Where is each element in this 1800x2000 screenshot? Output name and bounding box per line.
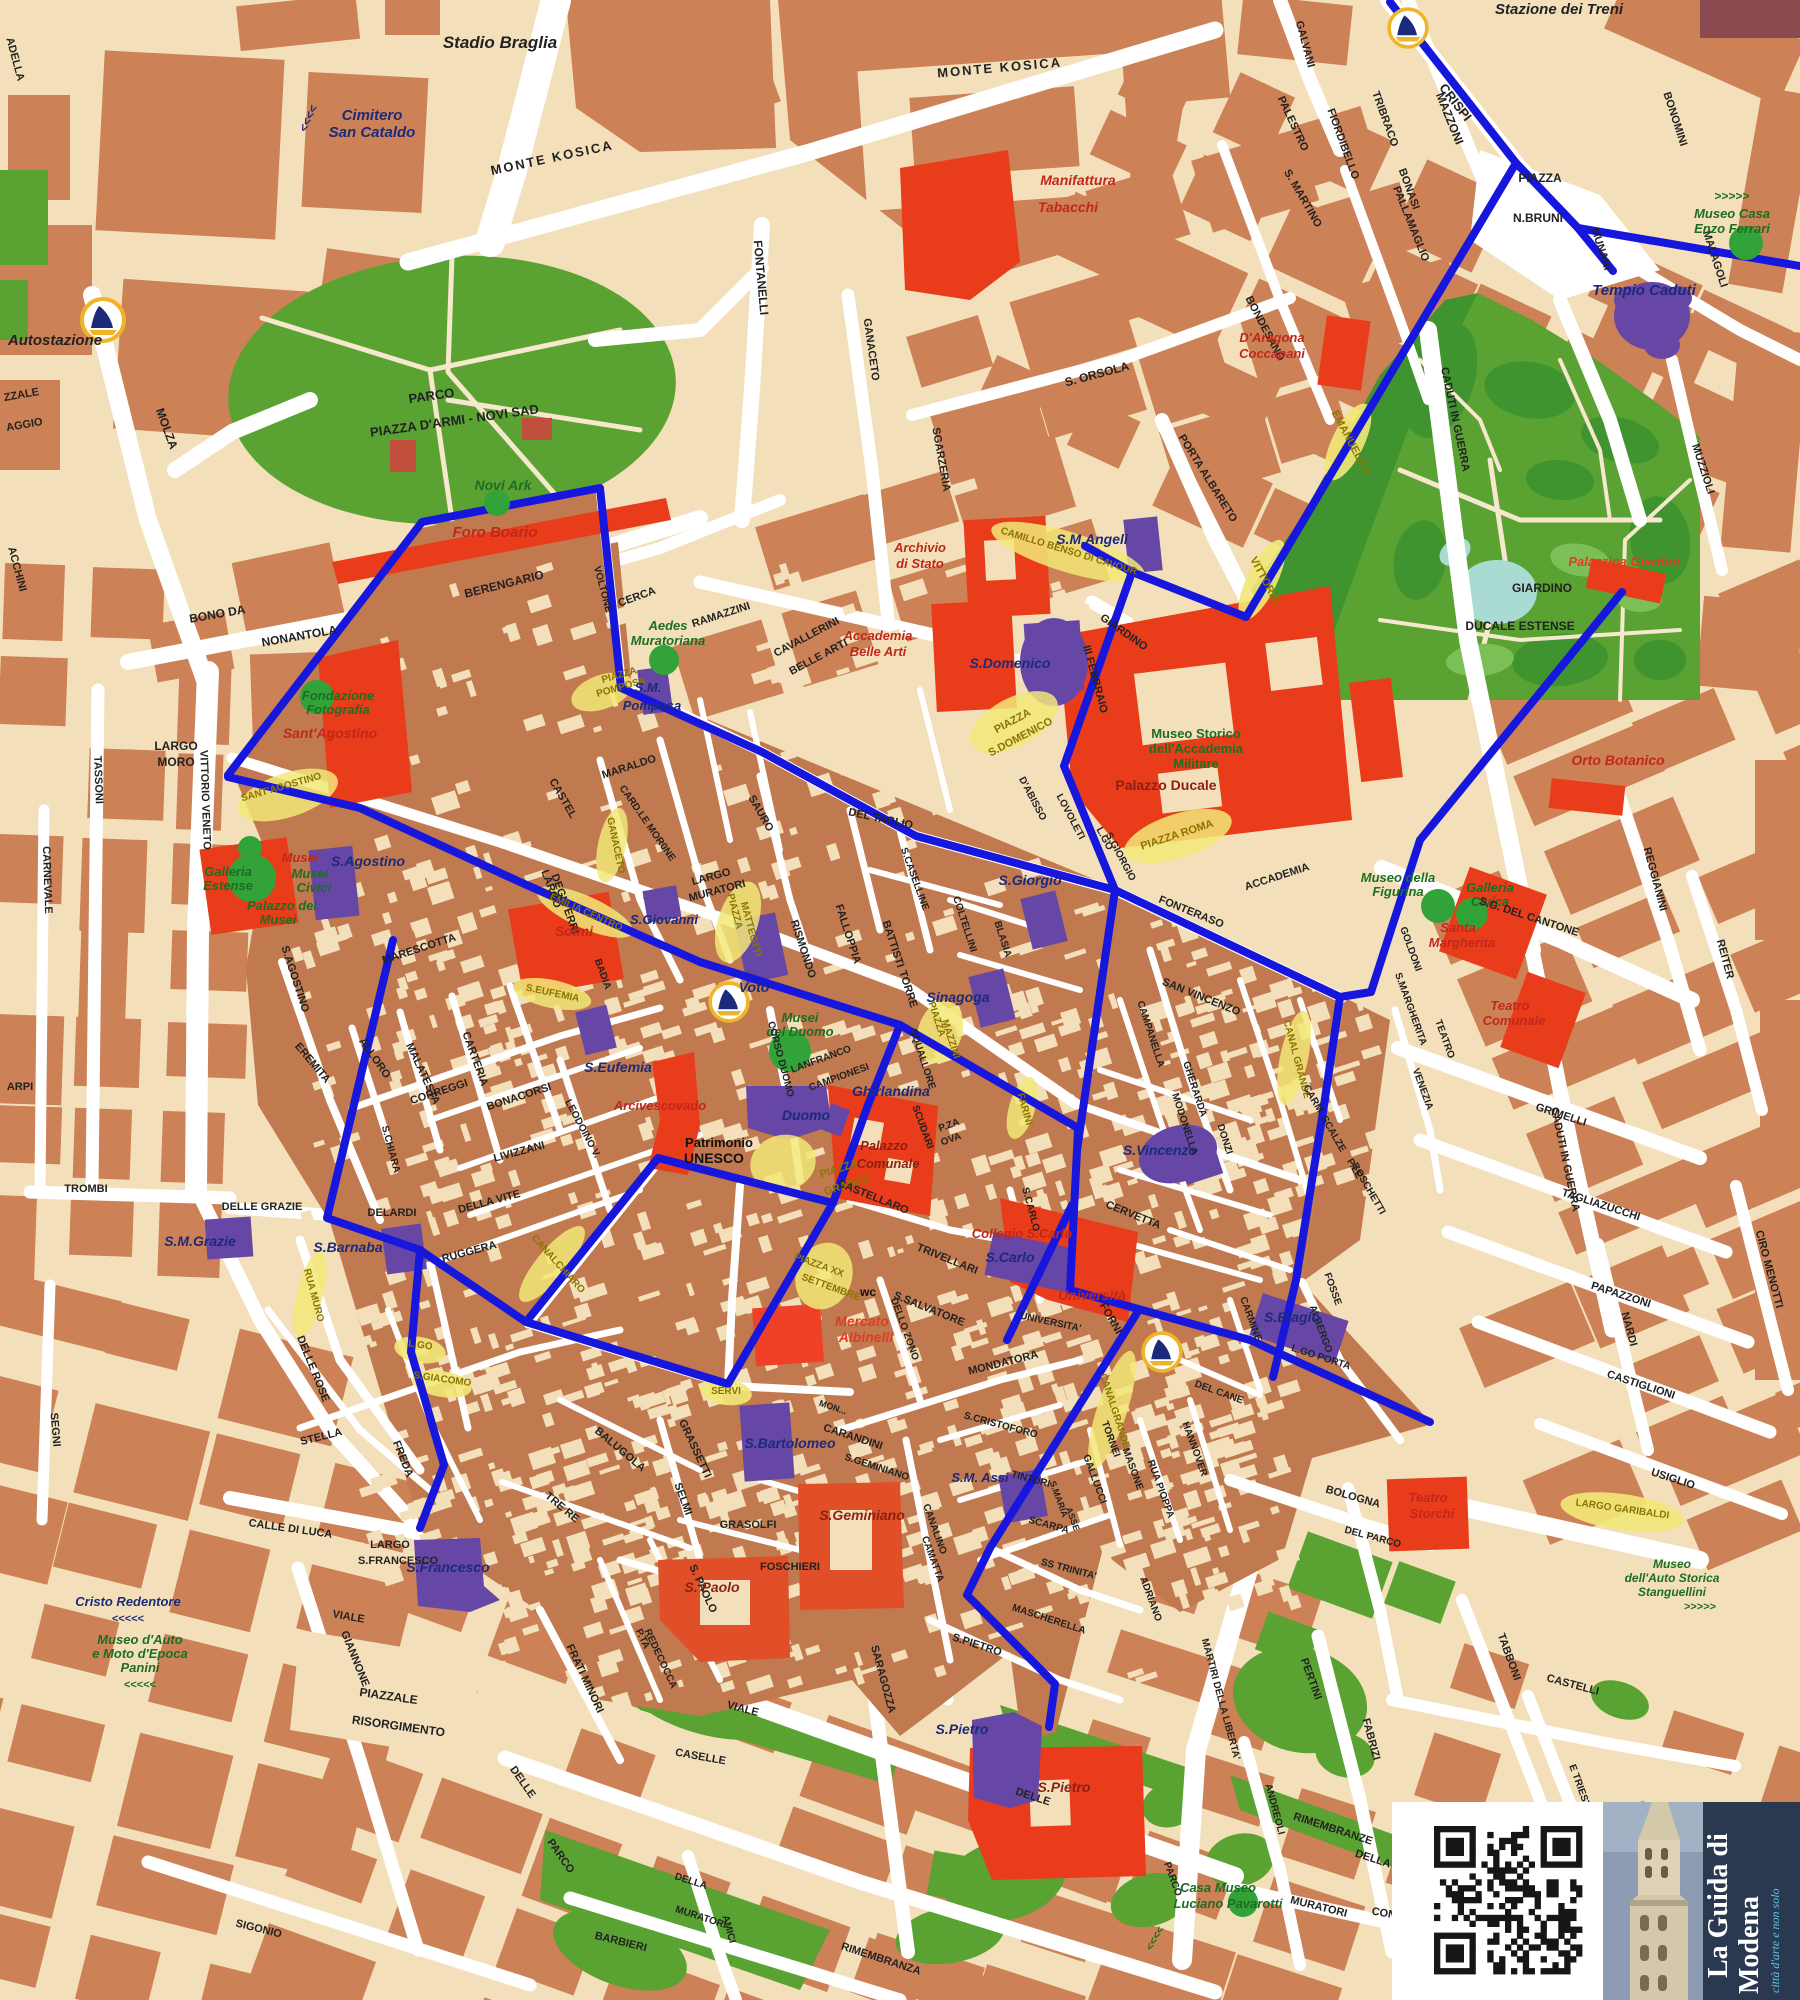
svg-text:Musei: Musei bbox=[260, 912, 297, 927]
svg-text:Sant'Agostino: Sant'Agostino bbox=[283, 725, 378, 741]
svg-text:di Stato: di Stato bbox=[896, 556, 944, 571]
svg-text:DUCALE ESTENSE: DUCALE ESTENSE bbox=[1465, 619, 1574, 633]
svg-text:CARNEVALE: CARNEVALE bbox=[40, 846, 54, 914]
svg-text:GIARDINO: GIARDINO bbox=[1512, 581, 1572, 595]
svg-text:Muratoriana: Muratoriana bbox=[631, 633, 705, 648]
svg-text:Voto: Voto bbox=[739, 979, 770, 995]
svg-text:Arcivescovado: Arcivescovado bbox=[613, 1098, 707, 1113]
svg-text:S.FRANCESCO: S.FRANCESCO bbox=[358, 1555, 439, 1567]
svg-text:S.Geminiano: S.Geminiano bbox=[819, 1507, 905, 1523]
svg-text:città d'arte e non solo: città d'arte e non solo bbox=[1768, 1888, 1782, 1993]
svg-text:Autostazione: Autostazione bbox=[7, 332, 102, 349]
svg-text:GRASOLFI: GRASOLFI bbox=[720, 1519, 777, 1531]
svg-text:dell'Accademia: dell'Accademia bbox=[1149, 741, 1244, 756]
svg-text:Teatro: Teatro bbox=[1490, 998, 1529, 1013]
svg-text:Luciano Pavarotti: Luciano Pavarotti bbox=[1173, 1896, 1282, 1911]
svg-text:Militare: Militare bbox=[1173, 756, 1219, 771]
svg-text:Sinagoga: Sinagoga bbox=[926, 989, 989, 1005]
svg-text:LARGO: LARGO bbox=[154, 739, 197, 753]
svg-text:Aedes: Aedes bbox=[647, 618, 687, 633]
svg-text:e Moto d'Epoca: e Moto d'Epoca bbox=[92, 1646, 188, 1661]
svg-text:Cristo Redentore: Cristo Redentore bbox=[75, 1594, 180, 1609]
svg-text:Duomo: Duomo bbox=[782, 1107, 831, 1123]
svg-text:Enzo Ferrari: Enzo Ferrari bbox=[1694, 221, 1770, 236]
svg-text:Novi Ark: Novi Ark bbox=[474, 477, 532, 493]
svg-text:S.Pietro: S.Pietro bbox=[1038, 1779, 1091, 1795]
svg-text:dell'Auto Storica: dell'Auto Storica bbox=[1625, 1571, 1720, 1585]
svg-text:Museo Casa: Museo Casa bbox=[1694, 206, 1770, 221]
svg-text:Comunale: Comunale bbox=[857, 1156, 920, 1171]
svg-text:Patrimonio: Patrimonio bbox=[685, 1135, 753, 1150]
svg-text:S.Barnaba: S.Barnaba bbox=[313, 1239, 382, 1255]
svg-text:Civici: Civici bbox=[297, 880, 332, 895]
svg-text:Belle Arti: Belle Arti bbox=[850, 644, 907, 659]
svg-text:Comunale: Comunale bbox=[1483, 1013, 1546, 1028]
svg-text:MORO: MORO bbox=[157, 755, 194, 769]
svg-text:Teatro: Teatro bbox=[1408, 1490, 1447, 1505]
svg-text:S.M.: S.M. bbox=[635, 680, 662, 695]
svg-text:Museo d'Auto: Museo d'Auto bbox=[97, 1632, 182, 1647]
svg-text:S.Eufemia: S.Eufemia bbox=[584, 1059, 652, 1075]
svg-text:Tabacchi: Tabacchi bbox=[1038, 199, 1099, 215]
svg-text:S.M.Grazie: S.M.Grazie bbox=[164, 1233, 236, 1249]
svg-text:Stanguellini: Stanguellini bbox=[1638, 1585, 1707, 1599]
svg-text:SERVI: SERVI bbox=[711, 1386, 741, 1397]
svg-text:Casa Museo: Casa Museo bbox=[1180, 1880, 1256, 1895]
svg-text:<<<<<: <<<<< bbox=[112, 1613, 144, 1625]
svg-text:Museo Storico: Museo Storico bbox=[1151, 726, 1241, 741]
svg-text:Figurina: Figurina bbox=[1372, 884, 1423, 899]
svg-text:Università: Università bbox=[1058, 1287, 1126, 1303]
svg-text:San Cataldo: San Cataldo bbox=[329, 124, 416, 141]
svg-text:S.Domenico: S.Domenico bbox=[970, 655, 1051, 671]
svg-text:DELARDI: DELARDI bbox=[368, 1207, 417, 1219]
svg-text:Solmi: Solmi bbox=[555, 923, 594, 939]
svg-text:TROMBI: TROMBI bbox=[64, 1183, 107, 1195]
svg-text:Pomposa: Pomposa bbox=[623, 698, 682, 713]
svg-text:S.Agostino: S.Agostino bbox=[331, 853, 405, 869]
svg-text:ARPI: ARPI bbox=[7, 1081, 33, 1093]
svg-text:Fotografia: Fotografia bbox=[306, 702, 370, 717]
svg-text:Orto Botanico: Orto Botanico bbox=[1571, 752, 1665, 768]
svg-text:Collegio S.Carlo: Collegio S.Carlo bbox=[972, 1226, 1072, 1241]
svg-text:S.Bartolomeo: S.Bartolomeo bbox=[744, 1435, 835, 1451]
svg-text:DELLE GRAZIE: DELLE GRAZIE bbox=[222, 1201, 303, 1213]
svg-text:Stazione dei Treni: Stazione dei Treni bbox=[1495, 1, 1624, 18]
svg-text:N.BRUNI: N.BRUNI bbox=[1513, 211, 1563, 225]
svg-text:Mercato: Mercato bbox=[835, 1313, 889, 1329]
svg-text:Musei: Musei bbox=[282, 850, 319, 865]
svg-text:Archivio: Archivio bbox=[893, 540, 946, 555]
svg-text:LARGO: LARGO bbox=[370, 1539, 410, 1551]
svg-text:S.Pietro: S.Pietro bbox=[936, 1721, 989, 1737]
svg-text:Albinelli: Albinelli bbox=[838, 1329, 895, 1345]
svg-text:Palazzo Ducale: Palazzo Ducale bbox=[1115, 777, 1216, 793]
svg-text:Santa: Santa bbox=[1440, 920, 1475, 935]
svg-text:FOSCHIERI: FOSCHIERI bbox=[760, 1561, 820, 1573]
svg-text:Estense: Estense bbox=[203, 878, 253, 893]
svg-text:D'Aragona: D'Aragona bbox=[1239, 330, 1304, 345]
svg-text:TASSONI: TASSONI bbox=[91, 756, 105, 804]
svg-text:Accademia: Accademia bbox=[843, 628, 913, 643]
svg-text:Storchi: Storchi bbox=[1410, 1506, 1455, 1521]
svg-text:S.Carlo: S.Carlo bbox=[985, 1249, 1034, 1265]
svg-text:Musei: Musei bbox=[782, 1010, 819, 1025]
svg-text:Palazzo: Palazzo bbox=[860, 1138, 908, 1153]
svg-text:Manifattura: Manifattura bbox=[1040, 172, 1116, 188]
svg-text:S.Biagio: S.Biagio bbox=[1264, 1309, 1320, 1325]
svg-text:Galleria: Galleria bbox=[204, 864, 252, 879]
svg-text:S.Giorgio: S.Giorgio bbox=[999, 872, 1062, 888]
svg-text:Stadio Braglia: Stadio Braglia bbox=[443, 33, 557, 52]
svg-text:S.M.Angeli: S.M.Angeli bbox=[1056, 531, 1129, 547]
svg-text:>>>>>: >>>>> bbox=[1684, 1601, 1716, 1613]
svg-text:S.Giovanni: S.Giovanni bbox=[630, 912, 698, 927]
svg-text:Musei: Musei bbox=[292, 866, 329, 881]
svg-text:S. Paolo: S. Paolo bbox=[684, 1579, 740, 1595]
svg-text:UNESCO: UNESCO bbox=[684, 1150, 744, 1166]
svg-text:wc: wc bbox=[859, 1285, 876, 1299]
svg-text:Panini: Panini bbox=[120, 1660, 159, 1675]
svg-text:Ghirlandina: Ghirlandina bbox=[852, 1083, 930, 1099]
svg-text:Palazzina Giardini: Palazzina Giardini bbox=[1568, 554, 1680, 569]
svg-text:Galleria: Galleria bbox=[1466, 880, 1514, 895]
svg-text:S.M. Assi: S.M. Assi bbox=[951, 1470, 1009, 1485]
svg-text:Coccapani: Coccapani bbox=[1239, 346, 1305, 361]
svg-text:PIAZZA: PIAZZA bbox=[1518, 171, 1562, 185]
svg-text:>>>>>: >>>>> bbox=[1714, 189, 1749, 203]
svg-text:<<<<<: <<<<< bbox=[124, 1679, 156, 1691]
svg-text:Fondazione: Fondazione bbox=[302, 688, 374, 703]
svg-text:Foro Boario: Foro Boario bbox=[453, 524, 538, 541]
svg-text:Museo della: Museo della bbox=[1361, 870, 1435, 885]
svg-text:Cimitero: Cimitero bbox=[342, 107, 403, 124]
svg-text:La Guida di: La Guida di bbox=[1703, 1833, 1734, 1978]
svg-text:Margherita: Margherita bbox=[1429, 935, 1495, 950]
svg-text:Palazzo dei: Palazzo dei bbox=[247, 898, 317, 913]
svg-text:Museo: Museo bbox=[1653, 1557, 1691, 1571]
svg-text:Tempio Caduti: Tempio Caduti bbox=[1592, 282, 1696, 299]
svg-text:Modena: Modena bbox=[1734, 1896, 1765, 1994]
